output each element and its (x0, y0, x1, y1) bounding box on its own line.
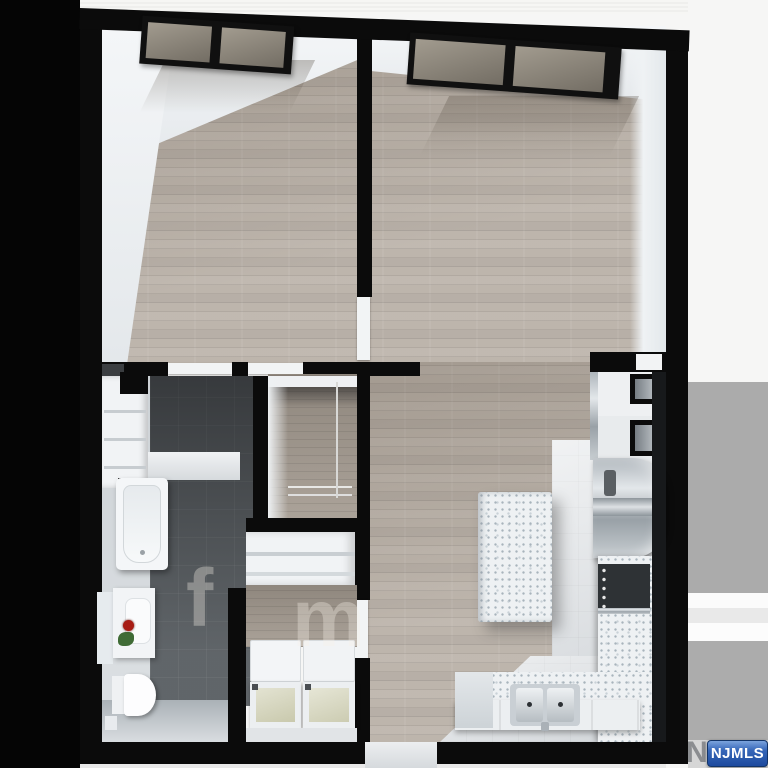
hall-wall-lower (355, 658, 370, 742)
right-margin-band (688, 0, 768, 382)
kitchen-sink (510, 684, 580, 726)
bedroom-door (357, 297, 370, 360)
bathtub (116, 478, 168, 570)
right-margin (688, 0, 768, 768)
closet-left-face (268, 376, 288, 520)
counter-wall-gap-shadow (652, 372, 666, 742)
washer-body (250, 682, 301, 728)
mid-wall-b (232, 362, 248, 376)
closet-bottom-wall (246, 518, 357, 532)
dryer-body (303, 682, 355, 728)
window-pane (146, 22, 212, 62)
sink-drain (558, 702, 563, 707)
south-wall-left (80, 742, 365, 764)
laundry-floor-front (246, 728, 357, 742)
dryer-hinge (305, 684, 311, 690)
rose-leaves (118, 632, 134, 646)
washer-drum (256, 688, 295, 722)
bathroom-mirror (97, 592, 113, 664)
kitchen-island (478, 492, 552, 622)
niche-shelf (104, 410, 146, 413)
window-pane (513, 46, 606, 92)
south-wall-right (437, 742, 666, 764)
right-margin-band (688, 382, 768, 593)
closet-door (248, 363, 303, 374)
floor-watermark-letter: f (186, 558, 213, 640)
njmls-watermark-label: NJMLS (711, 745, 764, 762)
right-margin-band (688, 593, 768, 608)
floor-plan-image: f m N NJMLS (0, 0, 768, 768)
counter-left-end (455, 672, 493, 728)
bedroom-window (139, 16, 294, 75)
washer-hinge (252, 684, 258, 690)
kitchen-top-wall-notch (636, 354, 662, 370)
right-margin-band (688, 641, 768, 740)
niche-stub-top (120, 372, 148, 394)
right-margin-band (688, 623, 768, 641)
range-controls (600, 566, 608, 610)
refrigerator-handle (604, 470, 616, 496)
closet-rod-support (336, 382, 338, 498)
entry-opening (365, 742, 437, 768)
rose-flower (123, 620, 134, 631)
niche-shelf (104, 466, 146, 469)
range-cooktop (598, 564, 650, 612)
sink-faucet (541, 722, 549, 731)
linen-shelf-edge (246, 552, 355, 556)
vanity (113, 588, 155, 658)
closet-rod (288, 486, 352, 488)
range-front (598, 608, 650, 614)
bath-laundry-divider-lower (228, 598, 246, 742)
right-margin-band (688, 608, 768, 623)
niche-shelf (104, 438, 146, 441)
east-wall (666, 40, 688, 764)
bathtub-drain (140, 550, 145, 555)
window-pane (219, 27, 285, 67)
toilet-paper-holder (105, 716, 117, 730)
closet-rod (288, 494, 352, 496)
hall-wall-upper (355, 376, 370, 600)
dryer-drum (309, 688, 349, 722)
njmls-watermark-badge: NJMLS (707, 740, 768, 767)
sink-drain (527, 702, 532, 707)
njmls-ghost-logo: N (686, 738, 708, 768)
left-margin (0, 0, 80, 768)
floor-watermark-letter: m (292, 578, 365, 660)
tub-shelf (148, 452, 240, 480)
bathroom-door (168, 363, 232, 374)
window-pane (413, 39, 506, 85)
